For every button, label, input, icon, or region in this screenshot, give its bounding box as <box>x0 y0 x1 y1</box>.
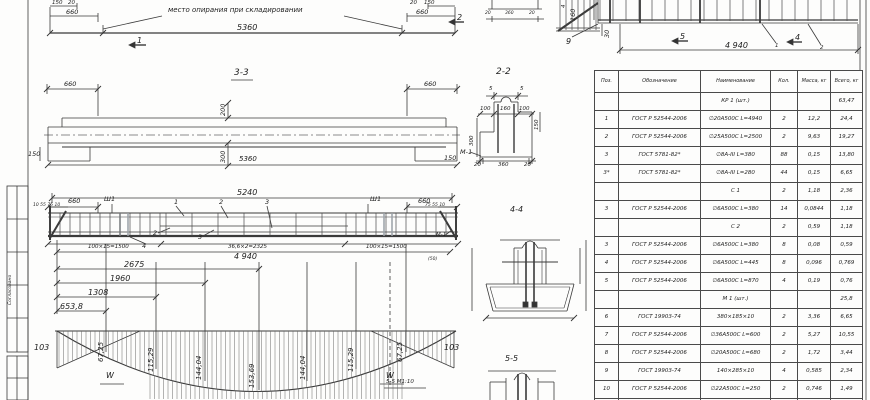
bar-label-4: 4 <box>142 243 146 250</box>
moment-value: 115,29 <box>148 348 155 373</box>
dim-660-top-right: 660 <box>416 9 428 16</box>
spec-table-body: КР 1 (шт.)63,471ГОСТ Р 52544-2006∅20А500… <box>595 93 863 400</box>
dim-5b-s22: 5 <box>520 87 524 93</box>
table-row: 2ГОСТ Р 52544-2006∅25А500С L=250029,6319… <box>595 129 863 147</box>
table-row: С 220,591,18 <box>595 219 863 237</box>
table-row: 5ГОСТ Р 52544-2006∅6А500С L=87040,190,76 <box>595 273 863 291</box>
table-cell: 0,096 <box>798 255 831 273</box>
table-cell: 3,36 <box>798 309 831 327</box>
table-cell: 12,2 <box>798 111 831 129</box>
table-cell: ГОСТ Р 52544-2006 <box>619 129 701 147</box>
table-cell: ГОСТ Р 52544-2006 <box>619 201 701 219</box>
chain-dim-2675: 2675 <box>124 261 144 269</box>
table-cell: 88 <box>771 147 798 165</box>
table-cell: С 1 <box>701 183 771 201</box>
dim-20b-micro: 20 <box>529 12 535 17</box>
col-designation: Обозначение <box>619 71 701 93</box>
table-cell: 44 <box>771 165 798 183</box>
table-cell: ГОСТ Р 52544-2006 <box>619 111 701 129</box>
dim-200-s33: 200 <box>220 104 227 116</box>
dim-160: 160 <box>570 9 577 21</box>
table-cell <box>619 183 701 201</box>
dim-150-right: 150 <box>424 1 435 7</box>
table-row: С 121,182,36 <box>595 183 863 201</box>
anchor-label-m1-cage: М-1 <box>436 233 446 239</box>
section-title-3-3: 3-3 <box>234 69 249 78</box>
dim-50: (50) <box>428 258 437 263</box>
table-cell: 5,27 <box>798 327 831 345</box>
table-cell: ∅6А500С L=380 <box>701 237 771 255</box>
table-cell: 380×185×10 <box>701 309 771 327</box>
bar-label-9: 9 <box>566 38 571 46</box>
table-cell: 2 <box>771 183 798 201</box>
table-cell: 4 <box>771 273 798 291</box>
table-row: 4ГОСТ Р 52544-2006∅6А500С L=44580,0960,7… <box>595 255 863 273</box>
table-row: 3ГОСТ Р 52544-2006∅6А500С L=380140,08441… <box>595 201 863 219</box>
table-cell: 0,15 <box>798 147 831 165</box>
dim-4940-detail: 4 940 <box>725 42 748 50</box>
w-label-left: W <box>106 372 114 380</box>
dim-300-s22: 300 <box>470 136 476 147</box>
table-cell: ∅6А500С L=445 <box>701 255 771 273</box>
table-cell: 8 <box>771 255 798 273</box>
table-row: 10ГОСТ Р 52544-2006∅22А500С L=25020,7461… <box>595 381 863 399</box>
storage-note: место опирания при складировании <box>168 7 303 14</box>
table-cell: ГОСТ Р 52544-2006 <box>619 327 701 345</box>
section-mark-1: 1 <box>137 37 142 45</box>
dim-5240: 5240 <box>237 189 257 197</box>
bar-label-2b: 2 <box>153 230 157 237</box>
table-cell <box>595 219 619 237</box>
dim-360-micro: 360 <box>505 12 514 17</box>
bar-label-3b: 3 <box>198 234 202 241</box>
table-cell: 0,19 <box>798 273 831 291</box>
bar-label-3: 3 <box>265 199 269 206</box>
mesh-label-sh1-right: Ш1 <box>370 196 381 203</box>
table-cell: ∅8А-III L=280 <box>701 165 771 183</box>
anchor-label-m1-s22: М-1 <box>460 149 472 156</box>
dim-150-s33: 150 <box>28 151 40 158</box>
table-cell: 3 <box>595 201 619 219</box>
table-cell: 1,49 <box>831 381 863 399</box>
table-row: 3ГОСТ Р 52544-2006∅6А500С L=38080,080,59 <box>595 237 863 255</box>
table-cell: ∅20А500С L=4940 <box>701 111 771 129</box>
spacing-right: 100×15=1500 <box>366 245 407 251</box>
table-cell: ГОСТ Р 52544-2006 <box>619 273 701 291</box>
section-mark-2: 2 <box>457 14 462 22</box>
table-row: 3ГОСТ 5781-82*∅8А-III L=380880,1513,80 <box>595 147 863 165</box>
table-row: М 1 (шт.)25,8 <box>595 291 863 309</box>
section-title-2-2: 2-2 <box>496 68 511 77</box>
spacing-left: 100×15=1500 <box>88 245 129 251</box>
table-cell: 1,18 <box>831 219 863 237</box>
table-row: 1ГОСТ Р 52544-2006∅20А500С L=4940212,224… <box>595 111 863 129</box>
table-cell: ∅25А500С L=2500 <box>701 129 771 147</box>
dim-30: 30 <box>604 30 611 38</box>
table-cell: 0,59 <box>831 237 863 255</box>
col-qty: Кол. <box>771 71 798 93</box>
table-cell: 6,65 <box>831 309 863 327</box>
table-cell: ГОСТ Р 52544-2006 <box>619 237 701 255</box>
moment-value-left: 103 <box>34 344 49 352</box>
table-cell <box>619 93 701 111</box>
dim-150-s33-right: 150 <box>444 155 456 162</box>
table-cell: 2 <box>771 129 798 147</box>
table-cell: 2 <box>771 309 798 327</box>
table-cell: 2 <box>771 345 798 363</box>
table-cell: 25,8 <box>831 291 863 309</box>
table-cell: 8 <box>595 345 619 363</box>
spacing-middle: 36,6×2=2325 <box>228 245 267 251</box>
table-cell: 3 <box>595 147 619 165</box>
table-cell: 10,55 <box>831 327 863 345</box>
table-cell: ∅36А500С L=600 <box>701 327 771 345</box>
drawing-sheet: 150 20 660 место опирания при складирова… <box>0 0 870 400</box>
moment-value: 144,04 <box>196 356 203 381</box>
table-cell: 0,746 <box>798 381 831 399</box>
table-cell: 1 <box>595 111 619 129</box>
table-cell: 19,27 <box>831 129 863 147</box>
table-row: 6ГОСТ 19903-74380×185×1023,366,65 <box>595 309 863 327</box>
table-cell: ∅6А500С L=870 <box>701 273 771 291</box>
dim-20-left: 20 <box>68 1 75 7</box>
table-cell: 6,65 <box>831 165 863 183</box>
table-cell: 2 <box>595 129 619 147</box>
table-row: 3*ГОСТ 5781-82*∅8А-III L=280440,156,65 <box>595 165 863 183</box>
table-cell: 13,80 <box>831 147 863 165</box>
bar-label-2-small: 2 <box>820 46 824 52</box>
table-cell: ГОСТ Р 52544-2006 <box>619 255 701 273</box>
table-row: 8ГОСТ Р 52544-2006∅20А500С L=68021,723,4… <box>595 345 863 363</box>
scale-note-5-5: 5-5 М1:10 <box>386 380 414 386</box>
tiny-dims-left: 10 55 75 10 <box>33 204 60 209</box>
col-name: Наименование <box>701 71 771 93</box>
table-cell <box>798 93 831 111</box>
dim-660-cage-left: 660 <box>68 198 80 205</box>
table-cell: 3 <box>595 237 619 255</box>
table-cell: 9,63 <box>798 129 831 147</box>
dim-20a-s22: 20 <box>474 163 481 169</box>
table-cell: 3,44 <box>831 345 863 363</box>
table-cell: ГОСТ Р 52544-2006 <box>619 381 701 399</box>
section-mark-4: 4 <box>795 34 800 42</box>
table-cell: 0,08 <box>798 237 831 255</box>
dim-660-top-left: 660 <box>66 9 78 16</box>
dim-4940-cage: 4 940 <box>234 253 257 261</box>
moment-value: 153,69 <box>249 364 256 389</box>
section-mark-5: 5 <box>680 33 685 41</box>
bar-label-2: 2 <box>219 199 223 206</box>
moment-value: 115,29 <box>348 348 355 373</box>
table-cell: М 1 (шт.) <box>701 291 771 309</box>
table-cell <box>798 291 831 309</box>
table-header-row: Поз. Обозначение Наименование Кол. Масса… <box>595 71 863 93</box>
dim-660-s33-right: 660 <box>424 81 436 88</box>
table-cell: 6 <box>595 309 619 327</box>
table-cell: 2 <box>771 327 798 345</box>
dim-5360-s33: 5360 <box>239 156 257 163</box>
table-cell <box>595 93 619 111</box>
dim-4-rot: 4 <box>562 5 568 9</box>
table-cell: 5 <box>595 273 619 291</box>
table-cell: 10 <box>595 381 619 399</box>
table-cell: 3* <box>595 165 619 183</box>
table-cell <box>771 93 798 111</box>
table-cell: 8 <box>771 237 798 255</box>
table-row: 7ГОСТ Р 52544-2006∅36А500С L=60025,2710,… <box>595 327 863 345</box>
moment-value-right: 103 <box>444 344 459 352</box>
table-cell: 0,59 <box>798 219 831 237</box>
table-cell: 2 <box>771 111 798 129</box>
table-cell: 2,36 <box>831 183 863 201</box>
table-cell: 4 <box>595 255 619 273</box>
table-cell: 4 <box>771 363 798 381</box>
dim-150-s22: 150 <box>535 120 541 131</box>
col-mass: Масса, кг <box>798 71 831 93</box>
table-cell: ГОСТ 19903-74 <box>619 309 701 327</box>
table-cell: ГОСТ 5781-82* <box>619 165 701 183</box>
table-cell: ГОСТ Р 52544-2006 <box>619 345 701 363</box>
table-cell: 2,34 <box>831 363 863 381</box>
dim-360-s22: 360 <box>498 163 509 169</box>
dim-660-s33-left: 660 <box>64 81 76 88</box>
moment-value: 67,25 <box>98 342 105 362</box>
table-cell <box>619 219 701 237</box>
table-cell: 140×285×10 <box>701 363 771 381</box>
moment-value: 144,04 <box>300 356 307 381</box>
col-total: Всего, кг <box>831 71 863 93</box>
table-cell: 14 <box>771 201 798 219</box>
table-cell: 2 <box>771 219 798 237</box>
dim-100b-s22: 100 <box>519 107 530 113</box>
table-cell: С 2 <box>701 219 771 237</box>
dim-150-left: 150 <box>52 1 63 7</box>
table-cell: 0,76 <box>831 273 863 291</box>
table-cell: 0,585 <box>798 363 831 381</box>
table-cell: ГОСТ 19903-74 <box>619 363 701 381</box>
table-cell: 7 <box>595 327 619 345</box>
dim-100a-s22: 100 <box>480 107 491 113</box>
table-cell: ∅8А-III L=380 <box>701 147 771 165</box>
specification-table: Поз. Обозначение Наименование Кол. Масса… <box>594 70 863 400</box>
mesh-label-sh1-left: Ш1 <box>104 196 115 203</box>
bar-label-1: 1 <box>174 199 178 206</box>
dim-5360-top: 5360 <box>237 24 257 32</box>
table-cell <box>619 291 701 309</box>
dim-20-right: 20 <box>410 1 417 7</box>
dim-300-s33: 300 <box>220 151 227 163</box>
chain-dim-1960: 1960 <box>110 275 130 283</box>
section-title-4-4: 4-4 <box>510 206 523 214</box>
chain-dim-653: 653,8 <box>60 303 83 311</box>
stamp-approved: Согласовано <box>9 275 14 305</box>
bar-label-1-small: 1 <box>775 44 779 50</box>
table-cell: ГОСТ 5781-82* <box>619 147 701 165</box>
table-cell: ∅22А500С L=250 <box>701 381 771 399</box>
table-cell <box>771 291 798 309</box>
table-cell <box>595 291 619 309</box>
moment-value: 67,25 <box>397 342 404 362</box>
dim-160-s22: 160 <box>500 107 511 113</box>
section-title-5-5: 5-5 <box>505 355 518 363</box>
table-cell: 0,15 <box>798 165 831 183</box>
table-cell: 1,18 <box>831 201 863 219</box>
table-cell: КР 1 (шт.) <box>701 93 771 111</box>
table-cell: 1,18 <box>798 183 831 201</box>
dim-20b-s22: 20 <box>524 163 531 169</box>
table-cell: 9 <box>595 363 619 381</box>
chain-dim-1308: 1308 <box>88 289 108 297</box>
table-row: КР 1 (шт.)63,47 <box>595 93 863 111</box>
table-row: 9ГОСТ 19903-74140×285×1040,5852,34 <box>595 363 863 381</box>
tiny-dims-right: 75 55 10 <box>425 204 445 209</box>
dim-5a-s22: 5 <box>489 87 493 93</box>
table-cell: ∅20А500С L=680 <box>701 345 771 363</box>
table-cell <box>595 183 619 201</box>
dim-20a-micro: 20 <box>485 12 491 17</box>
table-cell: 63,47 <box>831 93 863 111</box>
table-cell: 2 <box>771 381 798 399</box>
table-cell: 0,0844 <box>798 201 831 219</box>
table-cell: ∅6А500С L=380 <box>701 201 771 219</box>
table-cell: 24,4 <box>831 111 863 129</box>
table-cell: 1,72 <box>798 345 831 363</box>
table-cell: 0,769 <box>831 255 863 273</box>
col-pos: Поз. <box>595 71 619 93</box>
